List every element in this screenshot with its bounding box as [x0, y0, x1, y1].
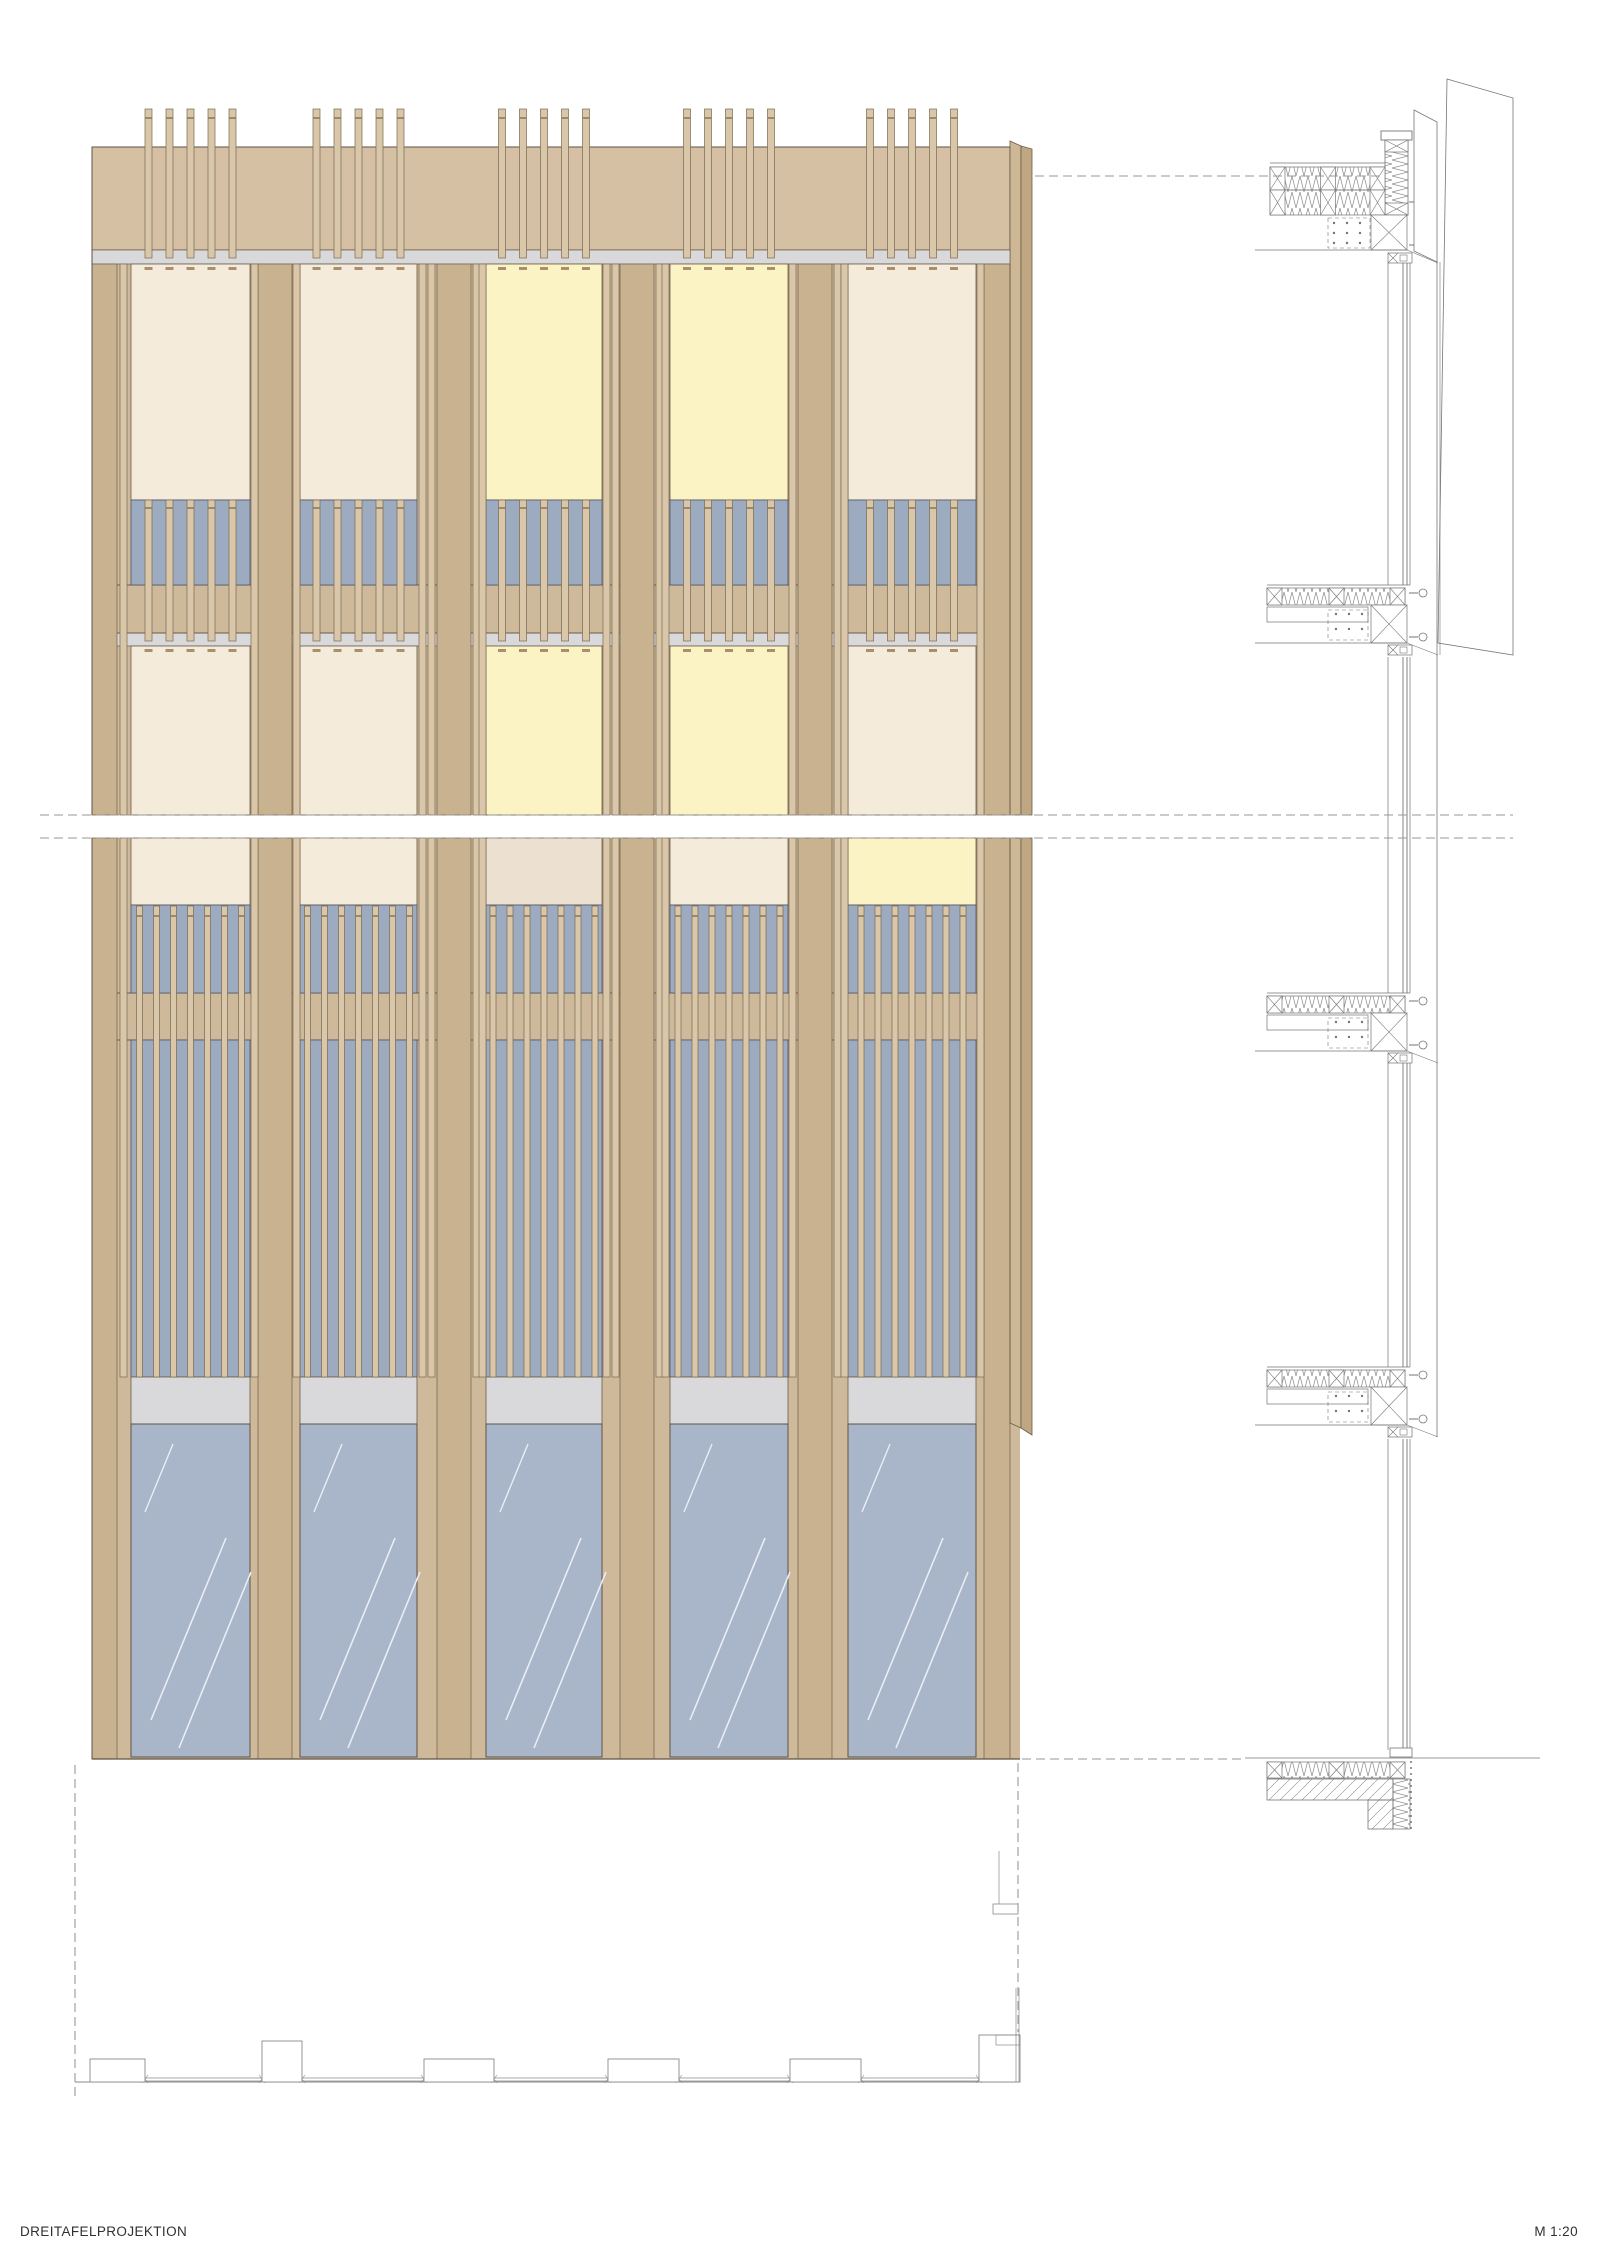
scale-label: M 1:20 [1534, 2224, 1578, 2239]
architectural-sheet: DREITAFELPROJEKTION M 1:20 [0, 0, 1600, 2262]
section-detail [1245, 79, 1540, 1829]
three-panel-projection-drawing [0, 0, 1600, 2262]
floor-plan [75, 1851, 1020, 2083]
drawing-title: DREITAFELPROJEKTION [20, 2224, 187, 2239]
